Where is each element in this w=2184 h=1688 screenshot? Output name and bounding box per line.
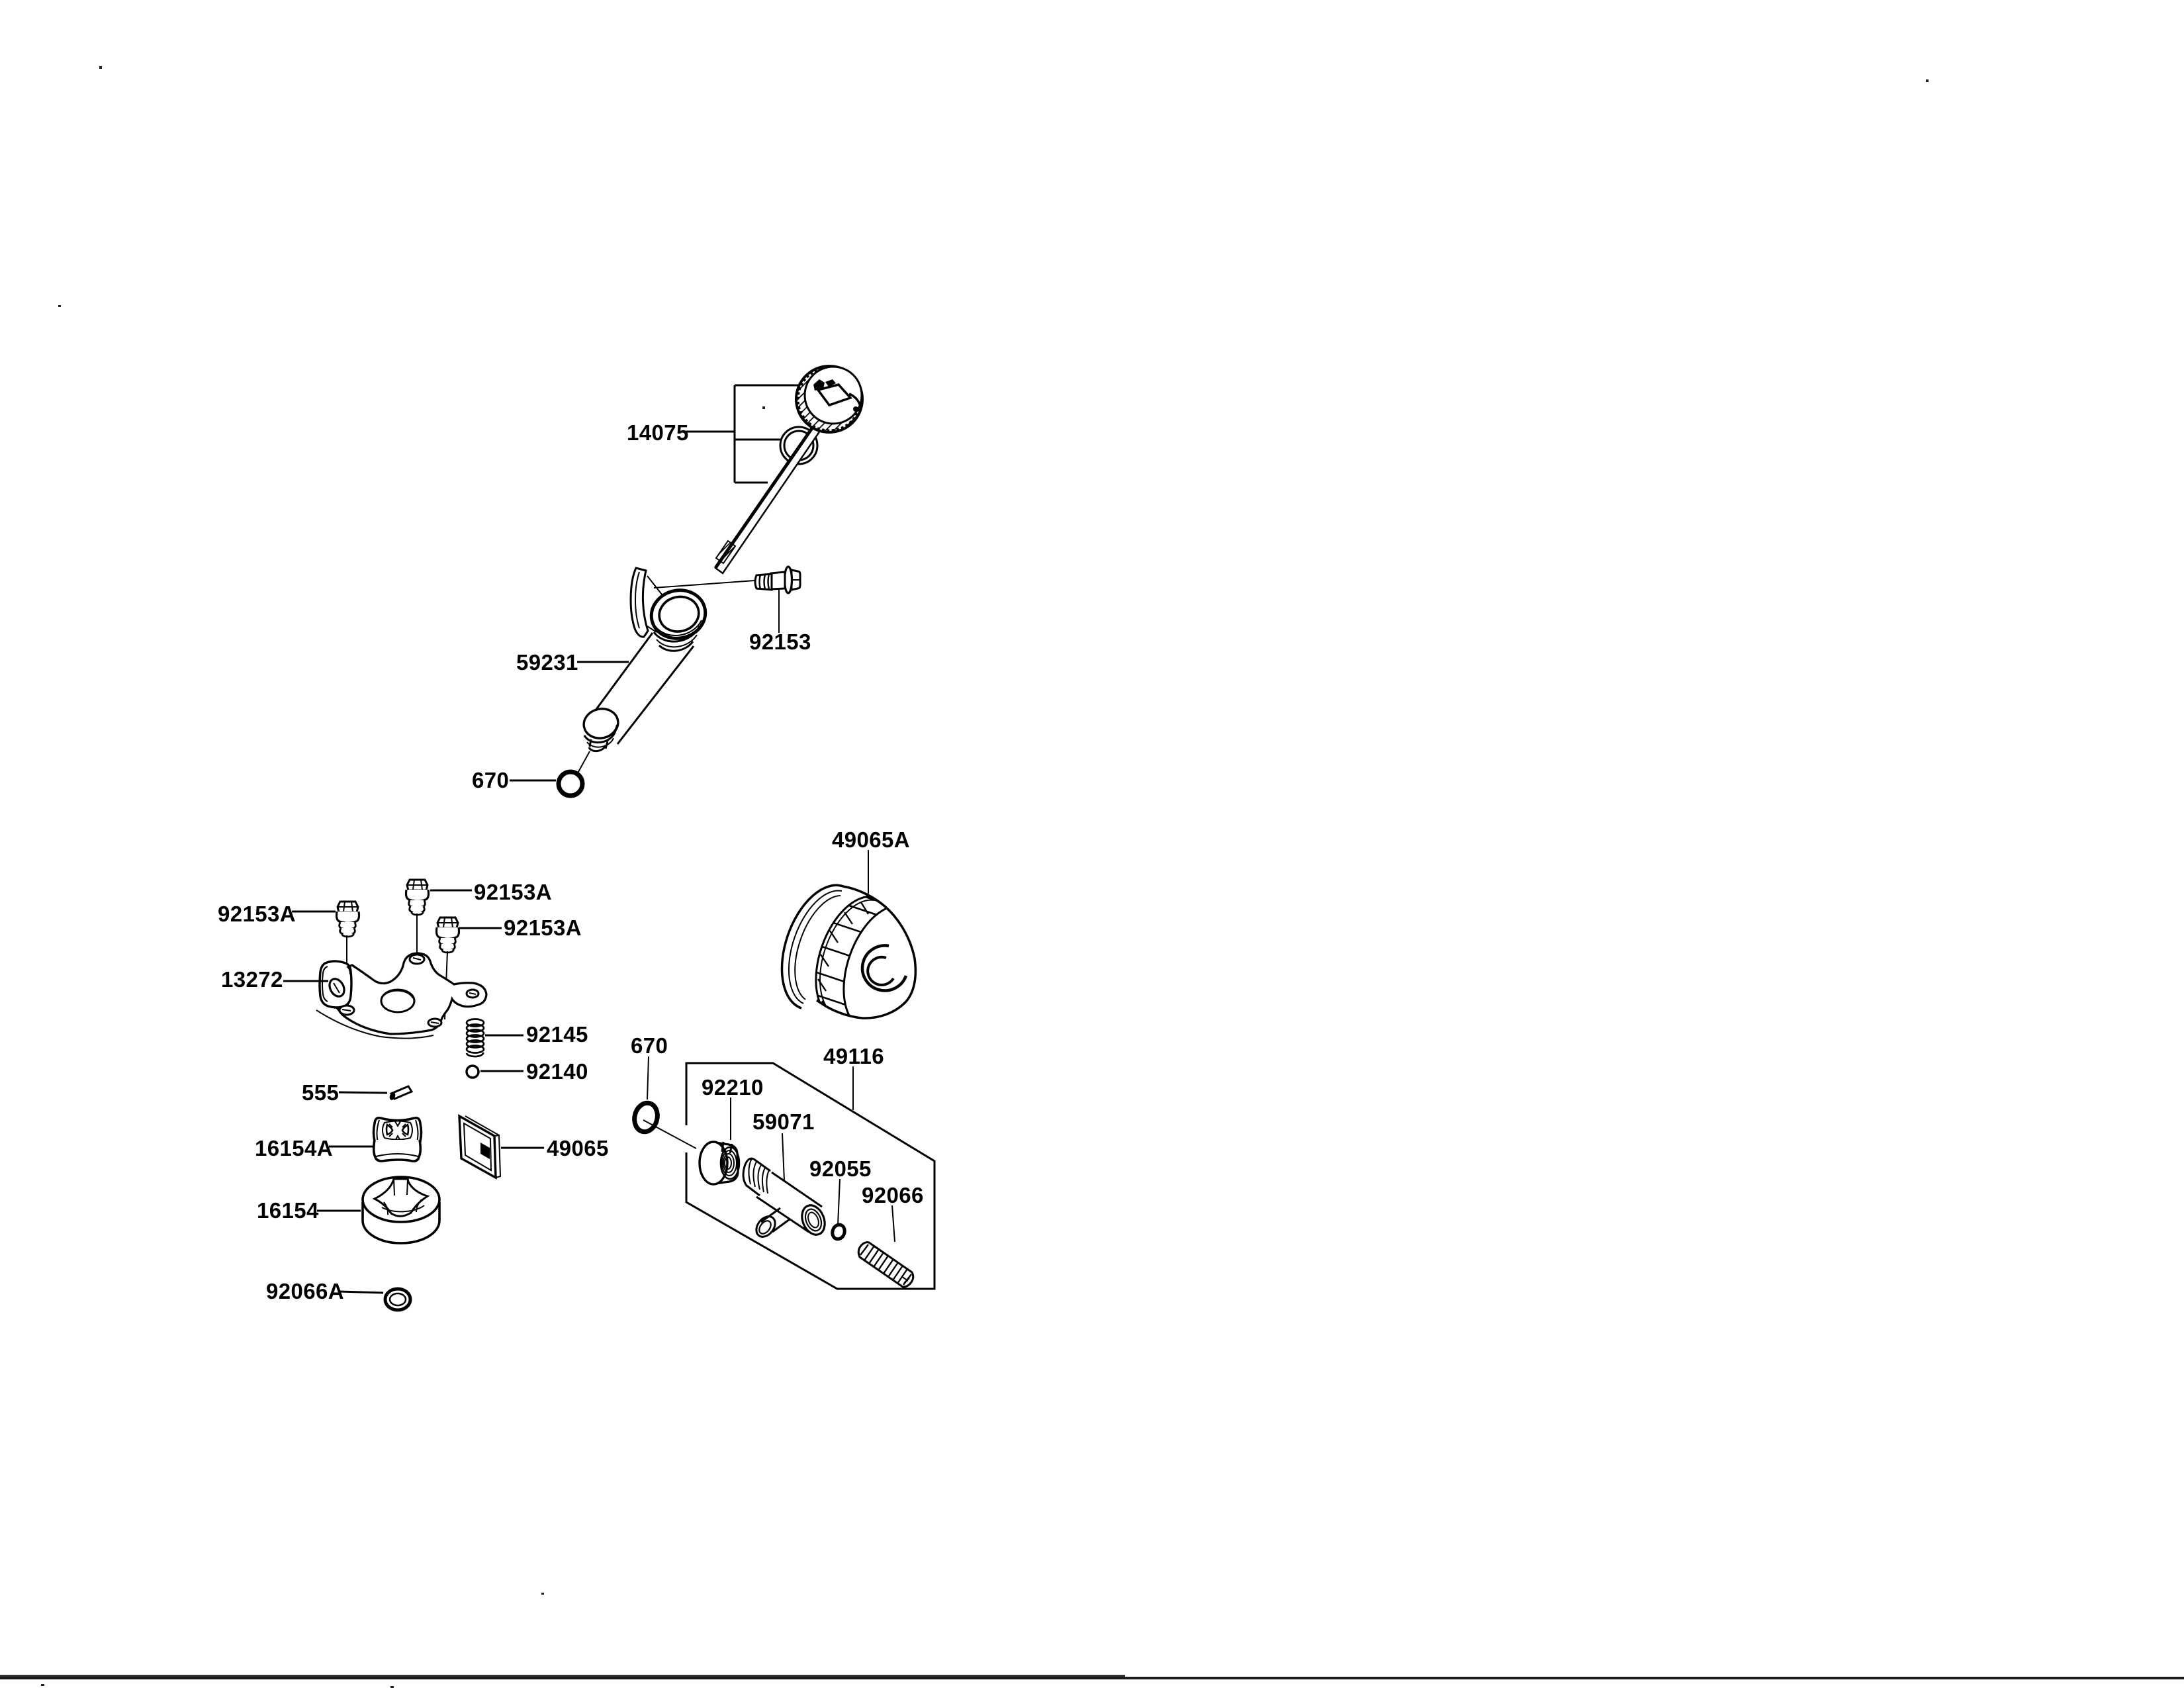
svg-text:670: 670 xyxy=(631,1033,668,1058)
svg-text:16154: 16154 xyxy=(257,1198,319,1223)
svg-text:92153A: 92153A xyxy=(474,880,552,904)
svg-text:49065: 49065 xyxy=(547,1136,609,1160)
svg-text:555: 555 xyxy=(302,1080,339,1105)
svg-text:92153A: 92153A xyxy=(218,902,296,926)
svg-text:92066: 92066 xyxy=(862,1183,924,1207)
svg-text:14075: 14075 xyxy=(627,420,689,445)
svg-text:670: 670 xyxy=(472,768,509,792)
svg-text:13272: 13272 xyxy=(221,967,283,992)
svg-text:92145: 92145 xyxy=(526,1022,588,1047)
svg-text:92140: 92140 xyxy=(526,1059,588,1084)
svg-text:92153: 92153 xyxy=(749,630,811,654)
svg-text:16154A: 16154A xyxy=(255,1136,333,1160)
svg-text:59231: 59231 xyxy=(516,650,578,675)
svg-text:49065A: 49065A xyxy=(832,827,910,852)
svg-text:49116: 49116 xyxy=(823,1044,884,1068)
svg-text:92210: 92210 xyxy=(702,1075,764,1100)
svg-text:92066A: 92066A xyxy=(266,1279,344,1303)
svg-text:59071: 59071 xyxy=(752,1109,815,1134)
svg-text:92055: 92055 xyxy=(809,1156,872,1181)
svg-text:92153A: 92153A xyxy=(504,915,582,940)
